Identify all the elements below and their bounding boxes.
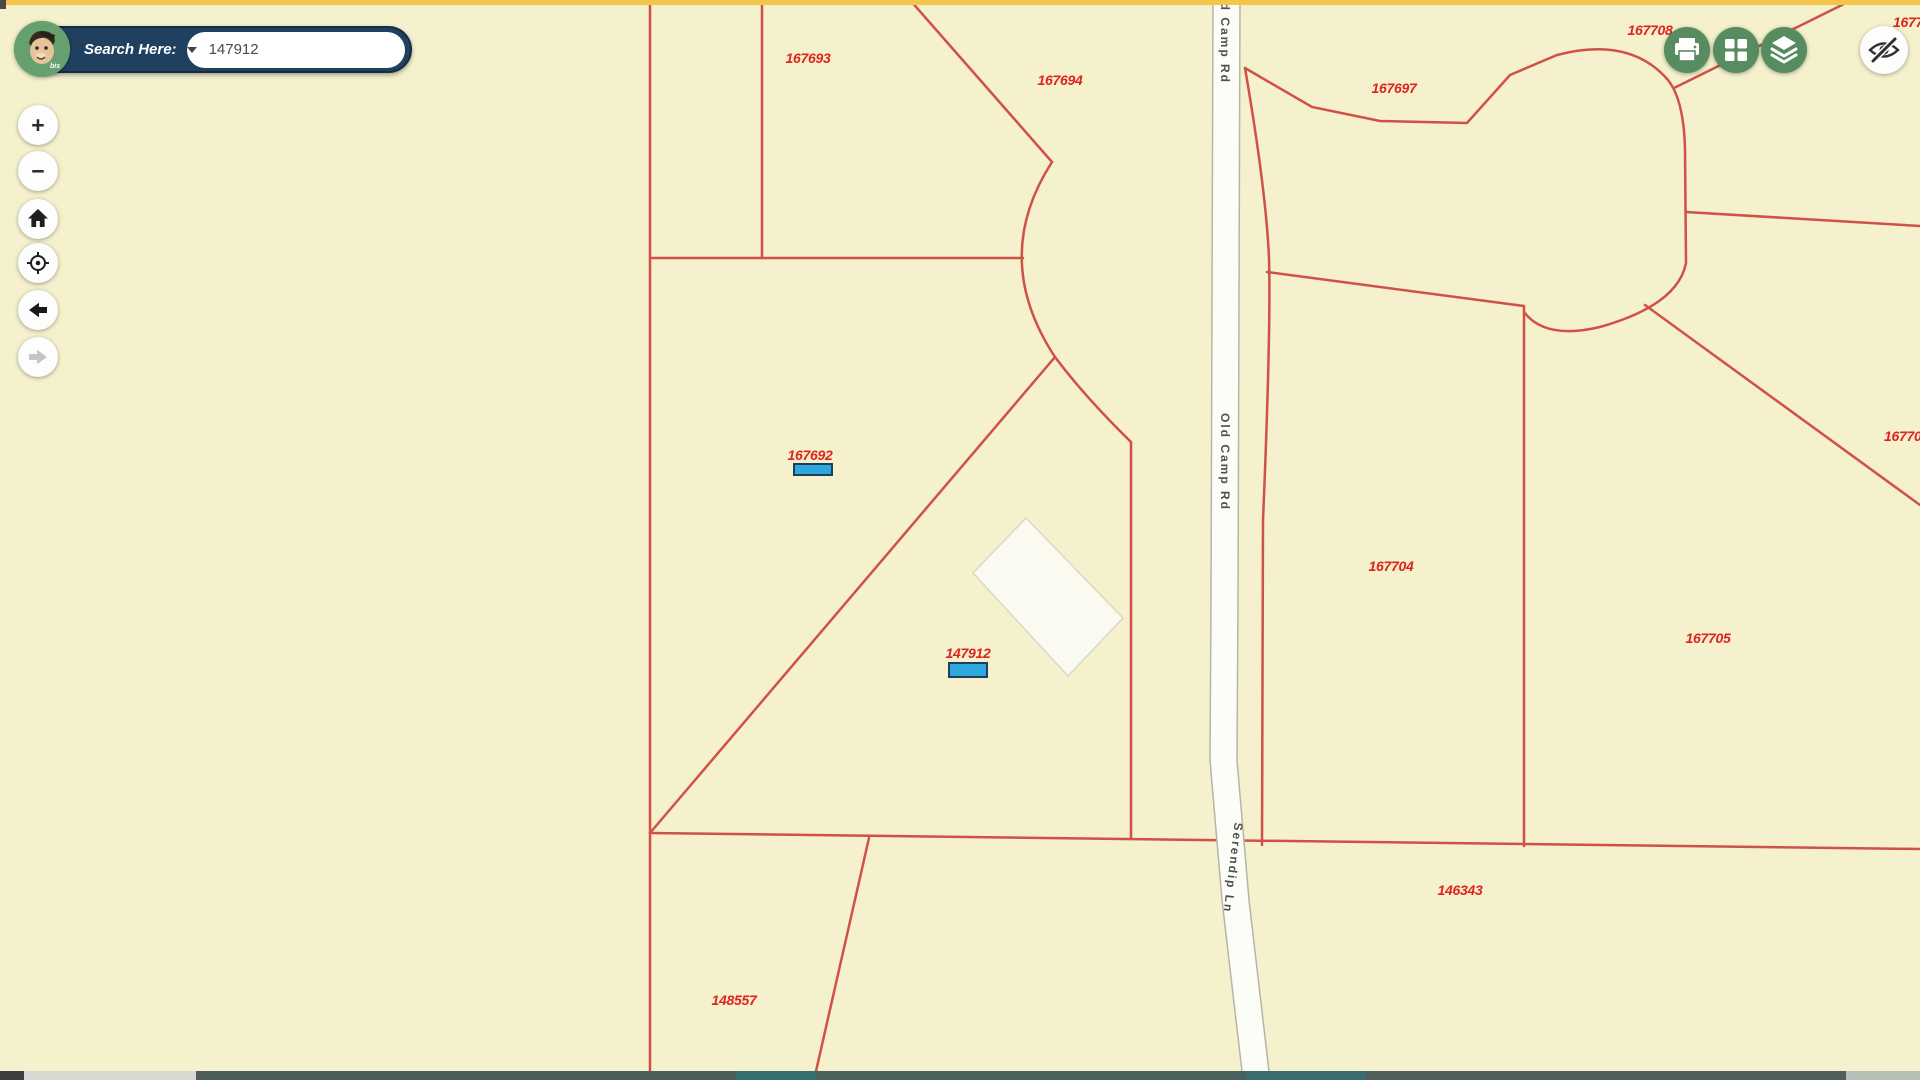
home-extent-button[interactable] (18, 199, 58, 239)
app-logo-avatar[interactable]: bis (14, 21, 70, 77)
search-type-dropdown[interactable] (187, 32, 197, 68)
top-edge-strip (0, 0, 1920, 5)
basemap-gallery-button[interactable] (1713, 27, 1759, 73)
layers-icon (1761, 27, 1807, 73)
bottom-bar-segment (1246, 1071, 1366, 1080)
printer-icon (1664, 27, 1710, 73)
bottom-bar (0, 1071, 1920, 1080)
parcel-boundaries (650, 0, 1920, 1080)
search-input[interactable] (197, 41, 405, 58)
zoom-in-button[interactable]: + (18, 105, 58, 145)
road-old-camp-rd (1210, 0, 1270, 1080)
parcel-map-viewer: { "search_bar": { "label": "Search Here:… (0, 0, 1920, 1080)
locate-target-icon (18, 243, 58, 283)
map-canvas[interactable] (0, 0, 1920, 1080)
bottom-bar-segment (1846, 1071, 1920, 1080)
bottom-bar-segment (816, 1071, 1246, 1080)
bottom-bar-segment (196, 1071, 736, 1080)
corner-artifact (0, 0, 6, 9)
bottom-bar-segment (24, 1071, 196, 1080)
print-button[interactable] (1664, 27, 1710, 73)
eye-slash-icon (1860, 26, 1908, 74)
bottom-bar-segment (0, 1071, 24, 1080)
plus-icon: + (31, 114, 44, 137)
search-bar: bis Search Here: (30, 26, 412, 73)
locate-me-button[interactable] (18, 243, 58, 283)
bottom-bar-segment (1366, 1071, 1846, 1080)
search-label: Search Here: (84, 41, 177, 58)
chevron-down-icon (187, 47, 197, 53)
arrow-left-icon (18, 290, 58, 330)
arrow-right-icon (18, 337, 58, 377)
search-pill (187, 32, 405, 68)
next-extent-button-disabled[interactable] (18, 337, 58, 377)
toggle-labels-button[interactable] (1860, 26, 1908, 74)
zoom-out-button[interactable]: − (18, 151, 58, 191)
bottom-bar-segment (736, 1071, 816, 1080)
minus-icon: − (31, 160, 44, 183)
home-icon (18, 199, 58, 239)
previous-extent-button[interactable] (18, 290, 58, 330)
layers-button[interactable] (1761, 27, 1807, 73)
mascot-icon: bis (14, 21, 70, 77)
building-footprint (973, 518, 1123, 676)
logo-text: bis (50, 63, 60, 70)
grid-icon (1713, 27, 1759, 73)
